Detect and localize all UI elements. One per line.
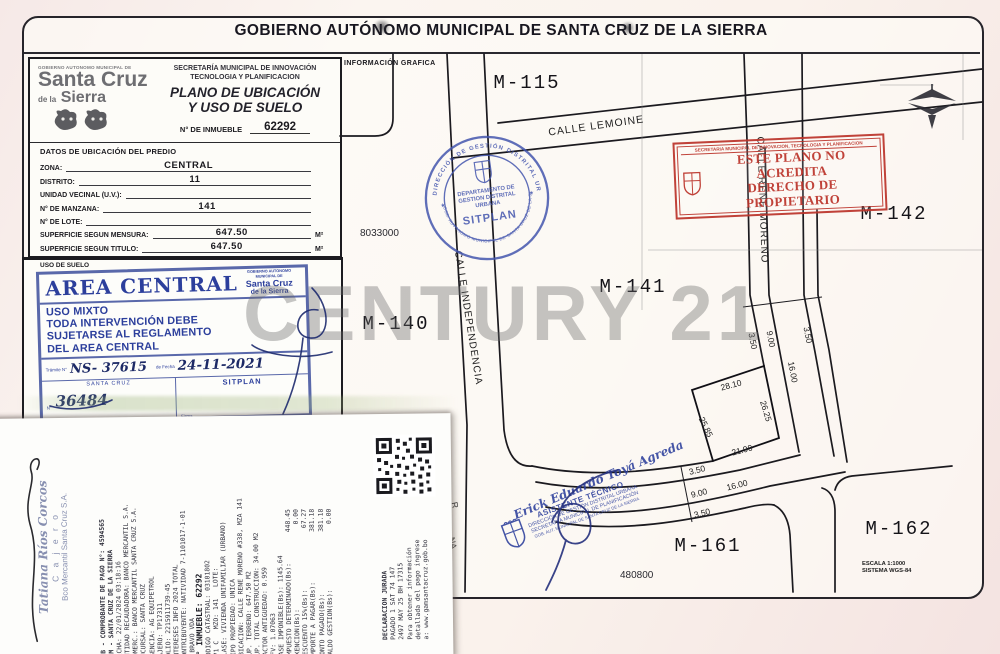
receipt-text: PUB - COMPROBANTE DE PAGO N°: 4594565GAM… (97, 419, 335, 654)
scanned-land-use-plan: GOBIERNO AUTÓNOMO MUNICIPAL DE SANTA CRU… (0, 0, 1000, 654)
payment-receipt: Tatiana Ríos Corcos C a j e r o Bco Merc… (0, 413, 453, 654)
qr-code (373, 434, 436, 497)
cashier-signature (11, 443, 58, 649)
receipt-line: a: www.gamsantacruz.gob.bo (421, 501, 431, 639)
receipt-footer-text: DECLARACION JURADAPAGADO 1 SAT 74 147249… (380, 501, 431, 640)
